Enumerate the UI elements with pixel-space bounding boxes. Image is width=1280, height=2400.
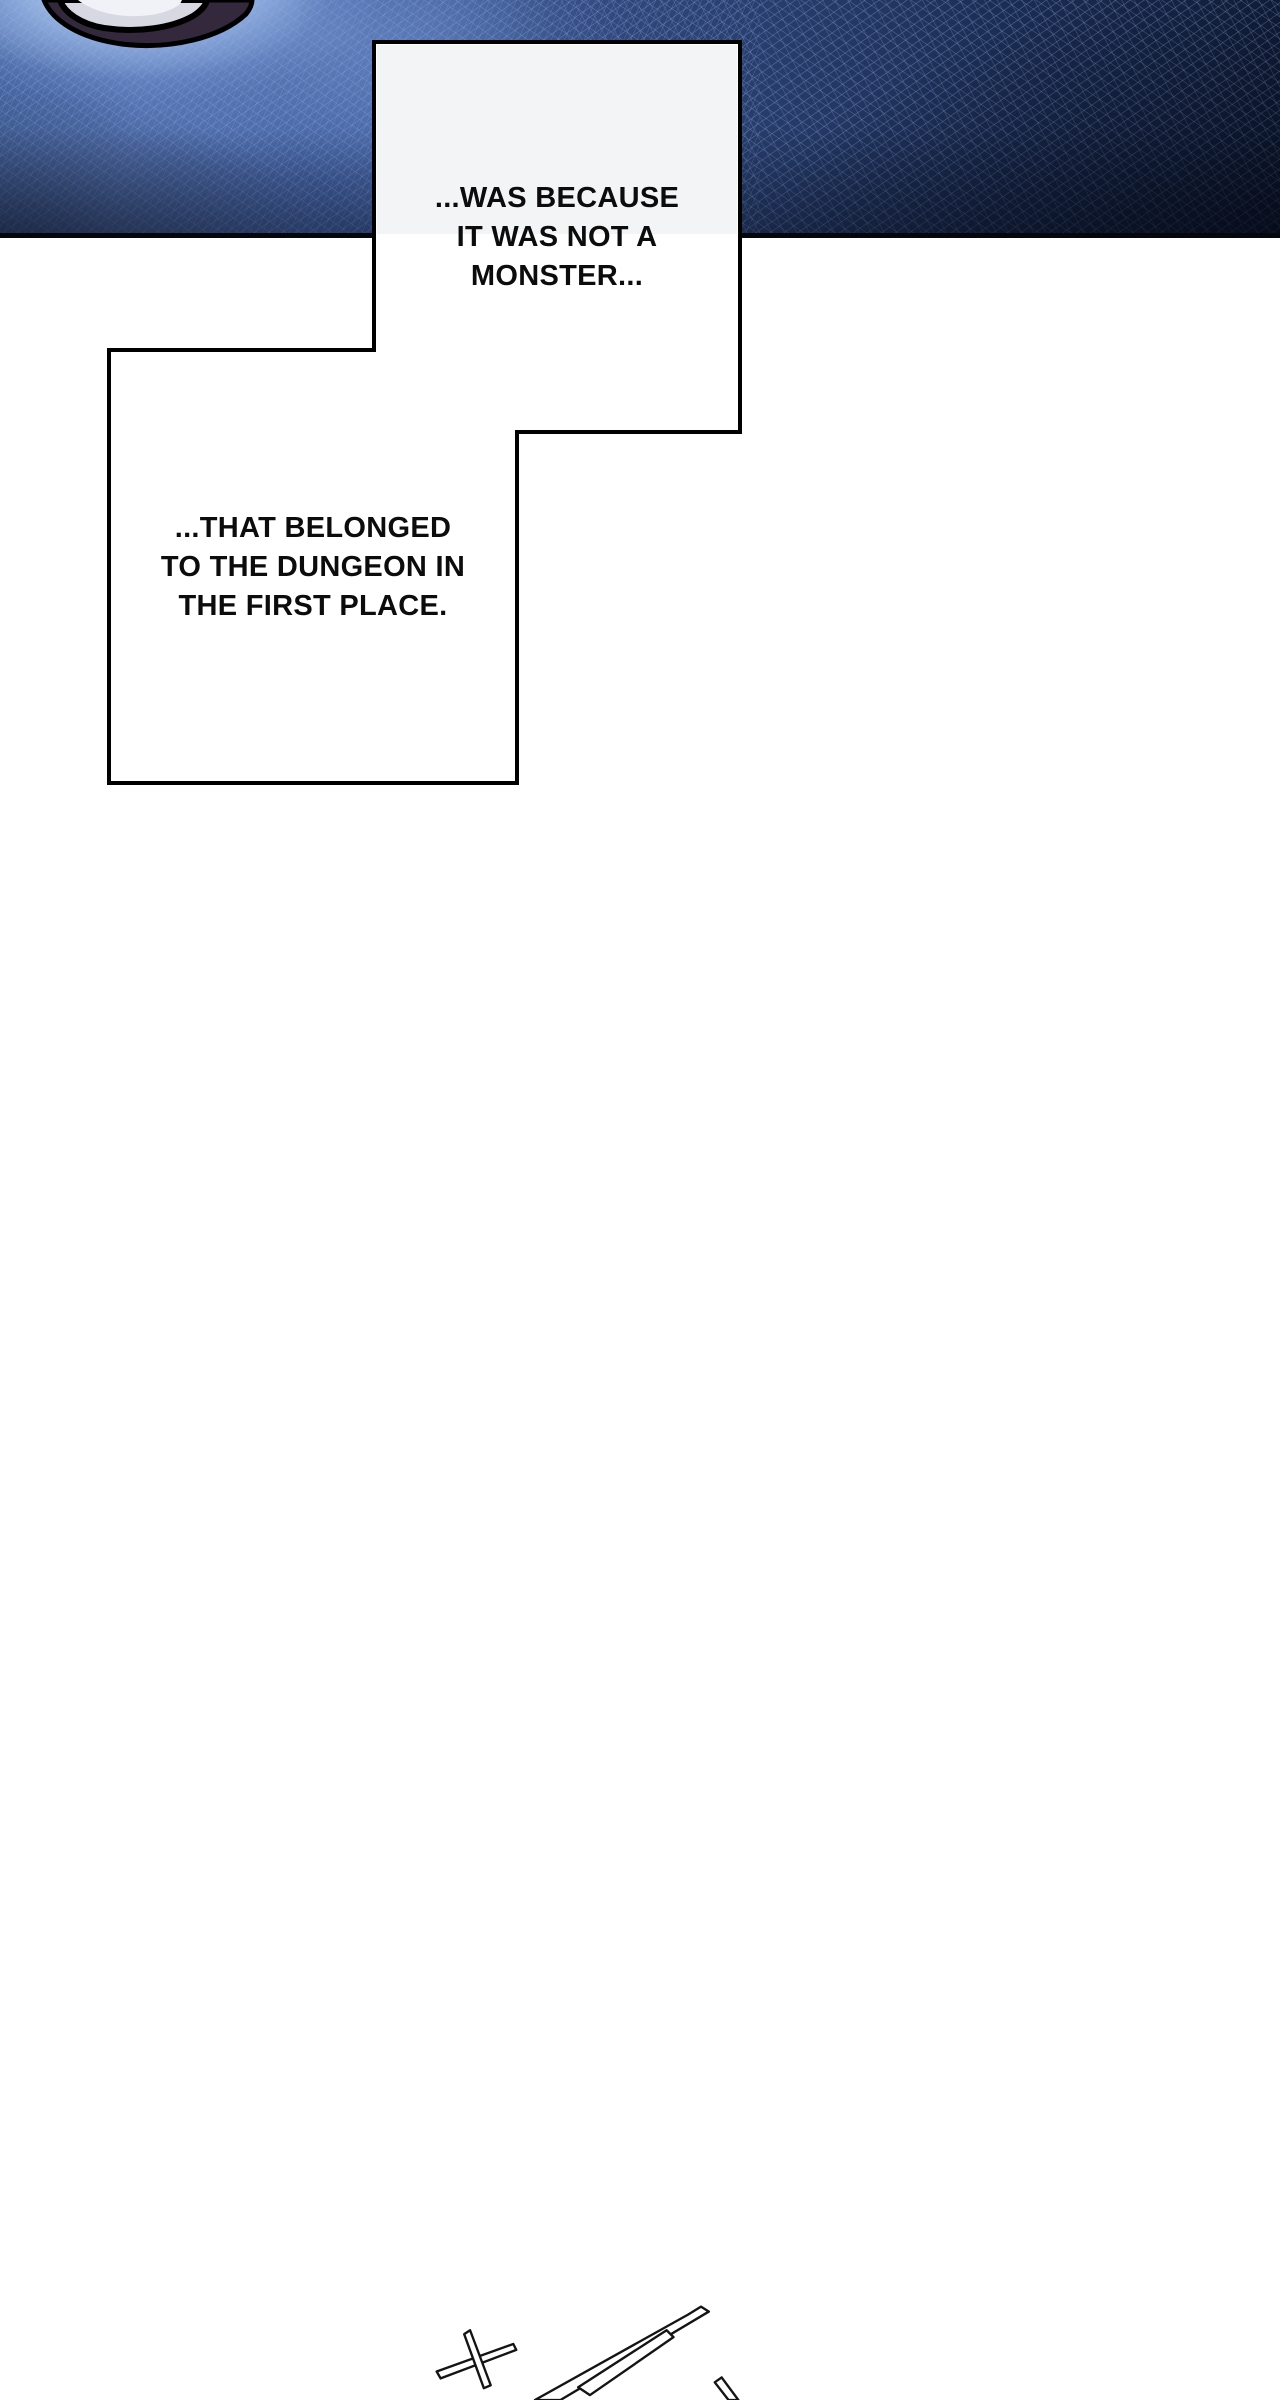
caption-1-line-3: MONSTER... xyxy=(377,257,737,296)
caption-2-line-2: TO THE DUNGEON IN xyxy=(112,548,514,587)
caption-2-line-3: THE FIRST PLACE. xyxy=(112,587,514,626)
caption-box-2: ...THAT BELONGED TO THE DUNGEON IN THE F… xyxy=(112,509,514,626)
caption-box-1: ...WAS BECAUSE IT WAS NOT A MONSTER... xyxy=(377,179,737,296)
caption-2-line-1: ...THAT BELONGED xyxy=(112,509,514,548)
webtoon-page: ...WAS BECAUSE IT WAS NOT A MONSTER... .… xyxy=(0,0,1280,2400)
caption-1-line-1: ...WAS BECAUSE xyxy=(377,179,737,218)
sword-sketch-artwork xyxy=(428,2287,748,2400)
caption-1-line-2: IT WAS NOT A xyxy=(377,218,737,257)
caption-box-outline xyxy=(0,0,900,800)
